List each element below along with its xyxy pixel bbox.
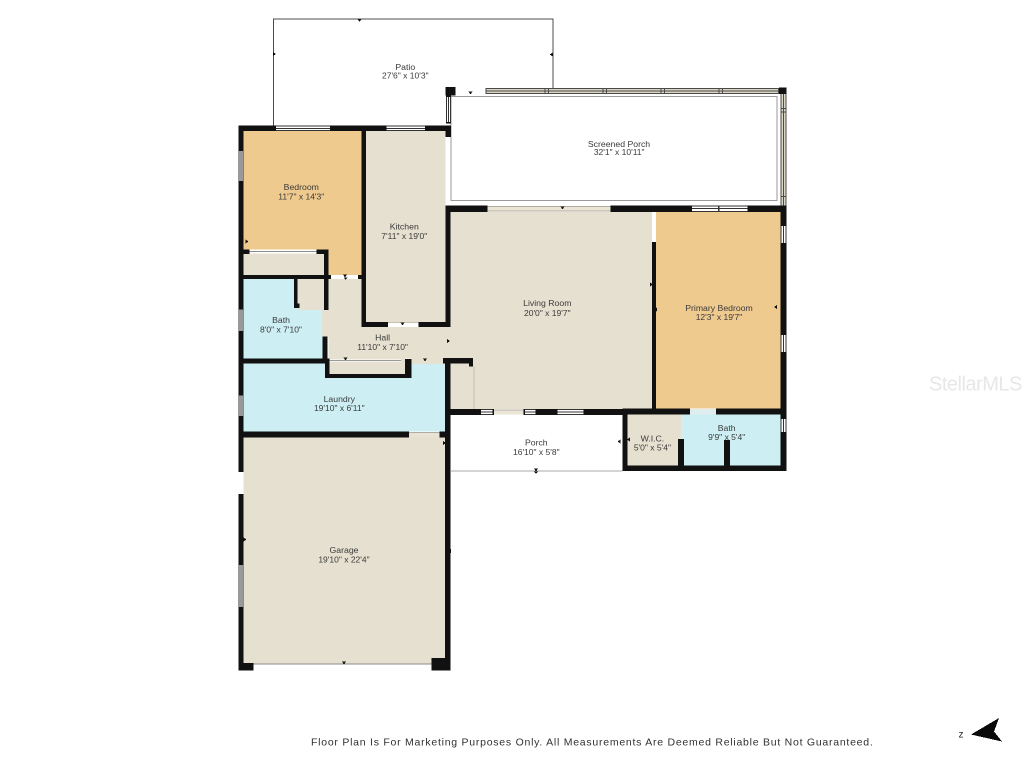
svg-text:12'3" x 19'7": 12'3" x 19'7" xyxy=(696,312,743,322)
svg-text:Bedroom: Bedroom xyxy=(284,182,319,192)
svg-text:19'10" x 22'4": 19'10" x 22'4" xyxy=(318,555,369,565)
svg-text:9'9" x 5'4": 9'9" x 5'4" xyxy=(708,432,745,442)
svg-text:Floor Plan Is For Marketing Pu: Floor Plan Is For Marketing Purposes Onl… xyxy=(311,737,874,749)
svg-text:7'11" x 19'0": 7'11" x 19'0" xyxy=(381,231,427,241)
svg-text:Living Room: Living Room xyxy=(523,298,571,308)
svg-text:5'0" x 5'4": 5'0" x 5'4" xyxy=(634,443,671,453)
svg-text:Porch: Porch xyxy=(525,438,548,448)
svg-text:20'0" x 19'7": 20'0" x 19'7" xyxy=(524,308,571,318)
svg-text:11'10" x 7'10": 11'10" x 7'10" xyxy=(357,342,408,352)
svg-text:StellarMLS: StellarMLS xyxy=(929,374,1022,396)
svg-text:Garage: Garage xyxy=(330,545,359,555)
svg-text:27'6" x 10'3": 27'6" x 10'3" xyxy=(382,71,429,81)
svg-text:z: z xyxy=(959,730,964,741)
svg-text:Hall: Hall xyxy=(375,333,390,343)
svg-text:16'10" x 5'8": 16'10" x 5'8" xyxy=(513,447,560,457)
svg-text:19'10" x 6'11": 19'10" x 6'11" xyxy=(314,403,365,413)
svg-text:8'0" x 7'10": 8'0" x 7'10" xyxy=(260,324,302,334)
svg-text:Bath: Bath xyxy=(272,315,290,325)
svg-text:Kitchen: Kitchen xyxy=(390,221,419,231)
svg-text:11'7" x 14'3": 11'7" x 14'3" xyxy=(278,191,324,201)
svg-text:32'1" x 10'11": 32'1" x 10'11" xyxy=(594,147,645,157)
